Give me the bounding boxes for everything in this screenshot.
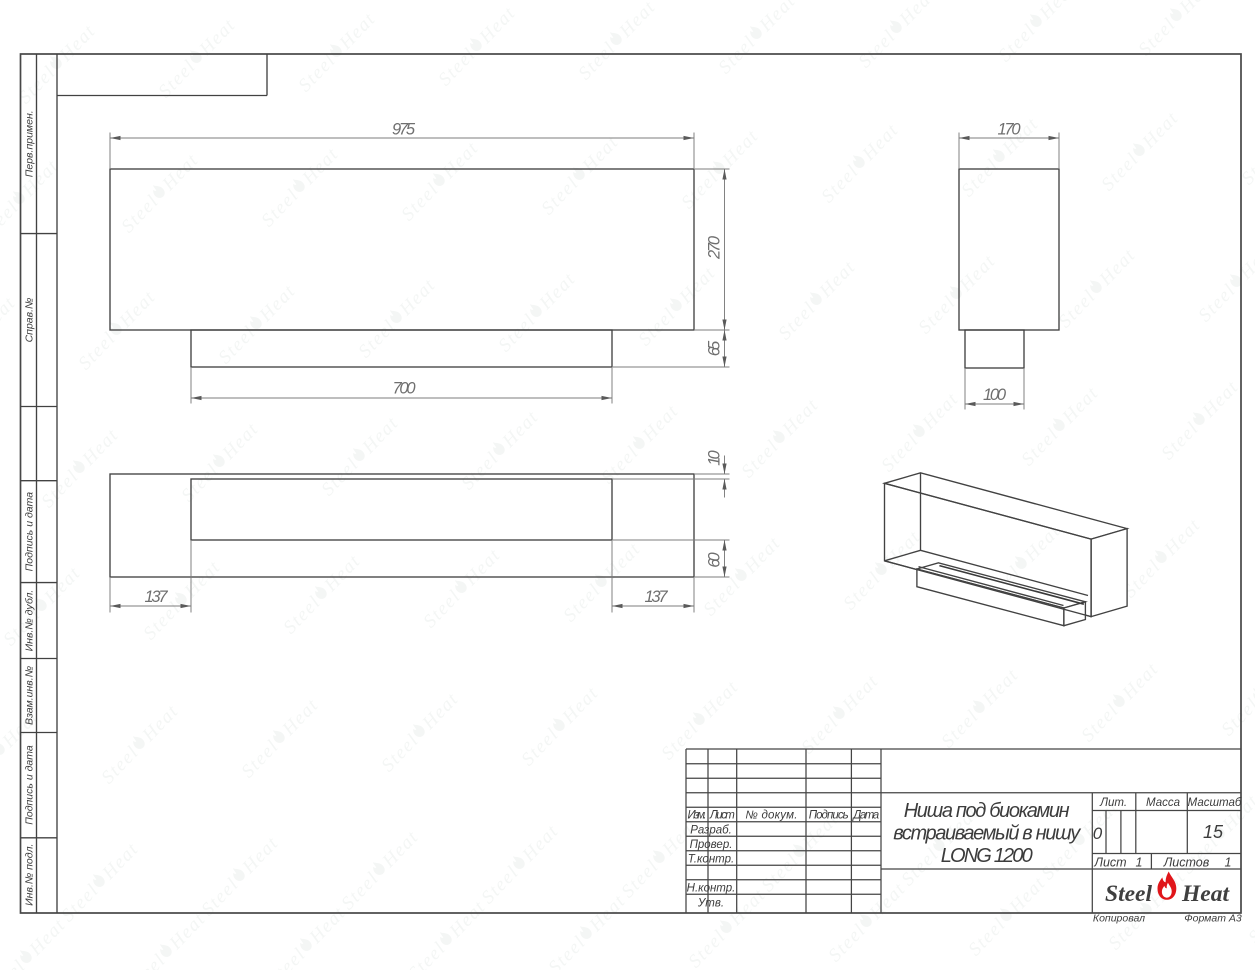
svg-text:Steel: Steel [1105,881,1152,907]
svg-text:1: 1 [1136,856,1143,870]
svg-text:60: 60 [706,551,724,567]
svg-text:170: 170 [997,121,1021,139]
svg-text:Утв.: Утв. [697,898,724,910]
svg-text:1: 1 [1225,856,1232,870]
svg-text:Инв.№ подл.: Инв.№ подл. [24,844,36,906]
svg-text:Разраб.: Разраб. [690,825,732,837]
svg-text:700: 700 [392,380,416,398]
svg-text:Н.контр.: Н.контр. [687,883,736,895]
svg-text:LONG 1200: LONG 1200 [941,845,1033,867]
svg-text:100: 100 [983,386,1007,404]
svg-text:№ докум.: № докум. [745,810,797,822]
svg-text:Справ.№: Справ.№ [24,298,36,343]
svg-text:10: 10 [706,449,724,465]
svg-text:Подпись и дата: Подпись и дата [24,745,36,825]
svg-text:137: 137 [644,588,668,606]
svg-text:Масса: Масса [1146,797,1180,809]
svg-text:Лист: Лист [709,810,735,822]
svg-text:Инв.№ дубл.: Инв.№ дубл. [24,590,36,652]
svg-text:Дата: Дата [851,810,879,822]
svg-text:Копировал: Копировал [1093,913,1145,925]
svg-text:Листов: Листов [1163,856,1210,870]
svg-text:65: 65 [706,340,724,356]
svg-text:Взам.инв.№: Взам.инв.№ [24,666,36,725]
svg-text:Heat: Heat [1181,881,1230,907]
svg-text:Масштаб: Масштаб [1188,797,1242,809]
svg-text:Подпись и дата: Подпись и дата [24,492,36,572]
svg-text:270: 270 [706,235,724,260]
svg-text:Изм.: Изм. [688,810,707,822]
svg-text:15: 15 [1203,822,1224,842]
svg-text:975: 975 [392,121,416,139]
svg-text:Т.контр.: Т.контр. [688,854,734,866]
svg-text:Лист: Лист [1093,856,1126,870]
svg-text:встраиваемый в нишу: встраиваемый в нишу [893,823,1081,845]
svg-text:Подпись: Подпись [809,810,849,822]
svg-text:Лит.: Лит. [1099,797,1127,809]
svg-text:Перв.примен.: Перв.примен. [24,110,36,177]
svg-text:Формат А3: Формат А3 [1184,913,1242,925]
svg-text:Ниша под биокамин: Ниша под биокамин [904,800,1070,822]
svg-text:0: 0 [1093,824,1103,843]
svg-text:137: 137 [144,588,168,606]
svg-text:Провер.: Провер. [690,839,733,851]
